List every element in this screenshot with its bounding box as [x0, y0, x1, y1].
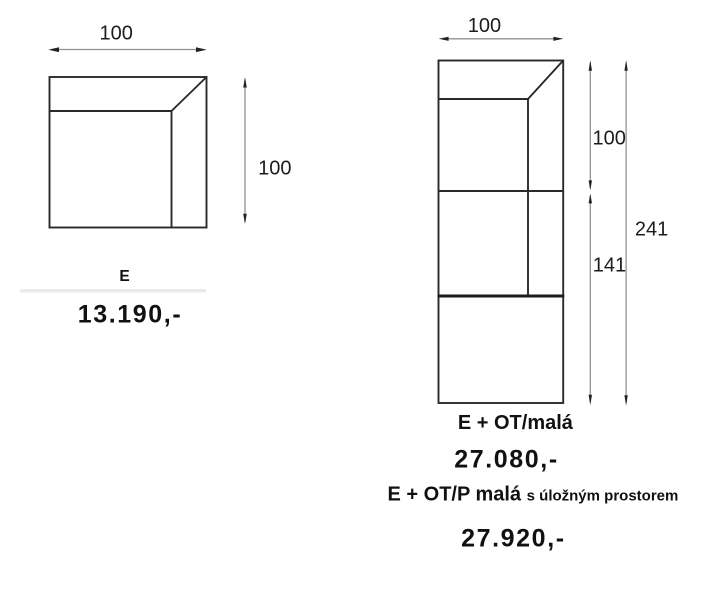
svg-text:E: E: [119, 268, 129, 285]
svg-text:E + OT/P malá s úložným prosto: E + OT/P malá s úložným prostorem: [388, 484, 679, 506]
svg-text:100: 100: [593, 128, 626, 150]
svg-text:13.190,-: 13.190,-: [78, 301, 183, 329]
svg-text:100: 100: [100, 23, 133, 45]
svg-text:100: 100: [468, 15, 501, 37]
svg-text:100: 100: [258, 157, 291, 179]
svg-text:27.920,-: 27.920,-: [461, 525, 566, 553]
svg-text:241: 241: [635, 218, 668, 240]
svg-text:141: 141: [593, 254, 626, 276]
svg-text:E + OT/malá: E + OT/malá: [458, 412, 574, 434]
svg-text:27.080,-: 27.080,-: [454, 446, 559, 474]
